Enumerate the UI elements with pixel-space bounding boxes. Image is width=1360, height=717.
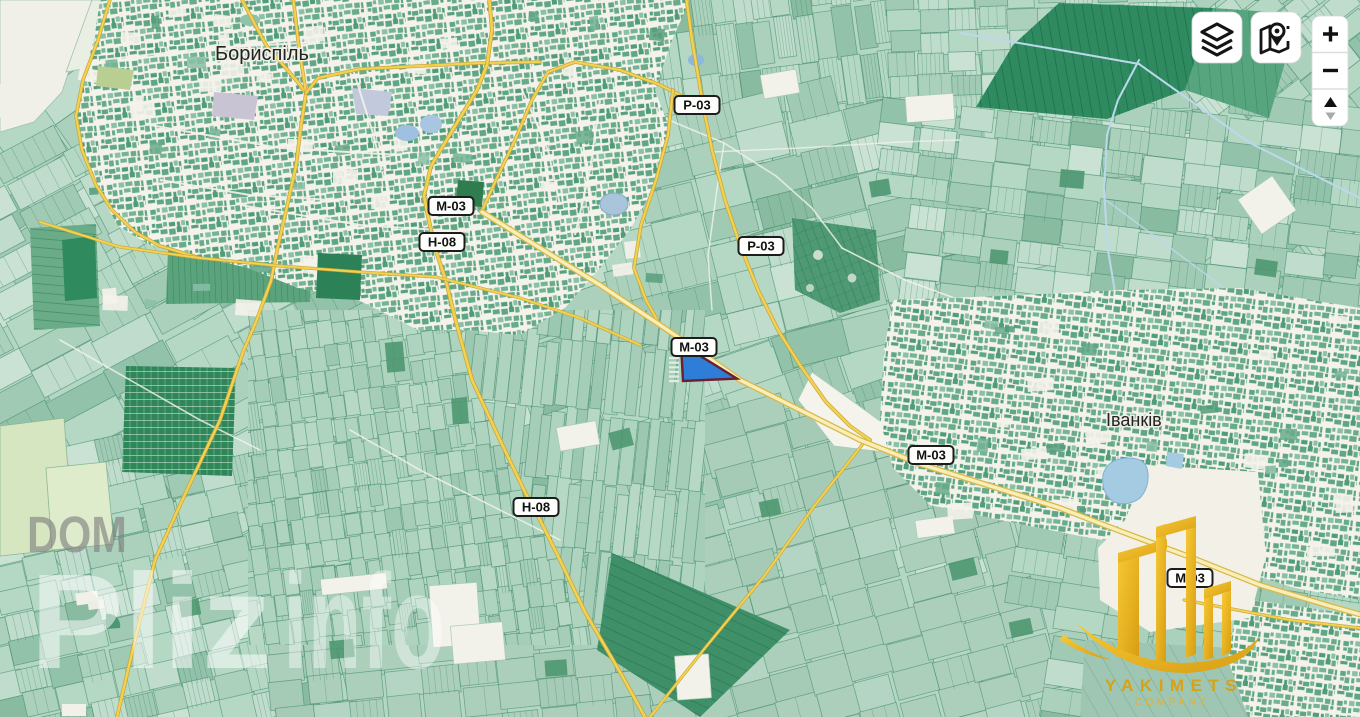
svg-text:YAKIMETS: YAKIMETS <box>1105 676 1243 695</box>
svg-text:Р-03: Р-03 <box>683 98 710 113</box>
svg-text:Н-08: Н-08 <box>522 500 550 515</box>
svg-text:М-03: М-03 <box>916 448 946 463</box>
svg-text:М-03: М-03 <box>436 199 466 214</box>
svg-text:Н-08: Н-08 <box>428 235 456 250</box>
svg-text:Іванків: Іванків <box>1106 410 1162 430</box>
svg-text:Р-03: Р-03 <box>747 239 774 254</box>
svg-text:Бориспіль: Бориспіль <box>215 43 309 65</box>
svg-text:COMPANY: COMPANY <box>1135 697 1209 708</box>
svg-text:Pliz: Pliz <box>30 546 272 697</box>
svg-text:М-03: М-03 <box>679 340 709 355</box>
svg-text:info: info <box>283 546 445 697</box>
